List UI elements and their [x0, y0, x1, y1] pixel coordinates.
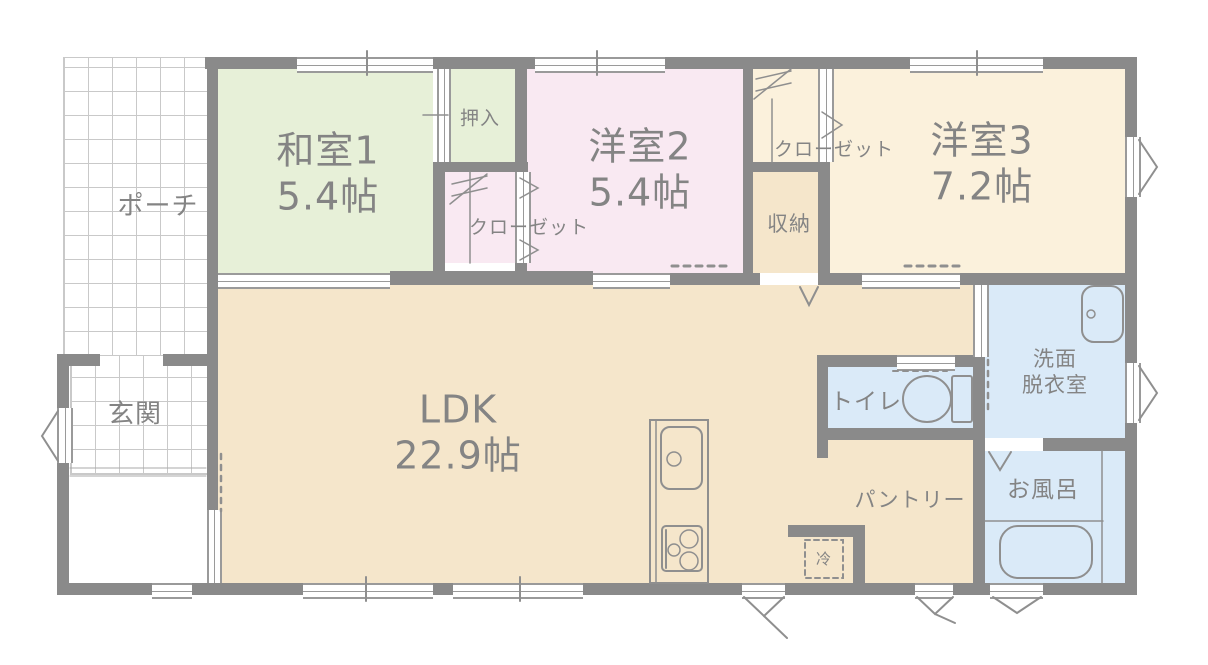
swing-door-icon [1139, 140, 1157, 420]
wall [390, 271, 593, 285]
western-room-3-label: 洋室3 7.2帖 [930, 118, 1033, 211]
oshiire-label: 押入 [460, 104, 500, 131]
swing-door [1125, 137, 1141, 197]
wall [973, 357, 985, 583]
wall [960, 273, 1137, 285]
wall [433, 162, 528, 172]
door-opening [985, 438, 1043, 451]
refrigerator-label: 冷 [816, 551, 832, 568]
back-door [990, 583, 1043, 599]
wall [583, 583, 742, 595]
window [535, 57, 665, 73]
storage-label: 収納 [767, 208, 811, 238]
room-name: 和室1 [276, 128, 379, 174]
room-name: 脱衣室 [1022, 372, 1088, 398]
sliding-door [218, 273, 390, 289]
wall [1125, 57, 1137, 137]
entrance-door [57, 408, 73, 463]
closet-east-label: クローゼット [774, 135, 894, 162]
sliding-door [207, 510, 222, 583]
entrance-label: 玄関 [108, 394, 162, 431]
washroom-label: 洗面 脱衣室 [1022, 346, 1088, 399]
ldk-label: LDK 22.9帖 [394, 387, 522, 480]
wall [953, 583, 990, 595]
japanese-room-1-label: 和室1 5.4帖 [276, 128, 379, 221]
room-size: 5.4帖 [588, 170, 691, 216]
window [910, 57, 1043, 73]
bath-label: お風呂 [1007, 470, 1079, 504]
pantry-label: パントリー [854, 484, 965, 514]
wall [853, 525, 865, 583]
wall [205, 57, 297, 69]
wall [433, 57, 535, 69]
door-opening [760, 273, 818, 285]
sliding-door [973, 285, 989, 357]
wall [785, 583, 915, 595]
room-name: LDK [394, 387, 522, 433]
room-size: 22.9帖 [394, 433, 522, 479]
wall [817, 355, 828, 458]
room-name: 洋室3 [930, 118, 1033, 164]
sliding-door [862, 273, 960, 289]
wall [1043, 583, 1137, 595]
entrance-door-swing-icon [42, 411, 58, 461]
sliding-door [437, 69, 451, 162]
wall [743, 162, 830, 172]
wall [433, 583, 453, 595]
closet-west-label: クローゼット [469, 213, 589, 240]
wall [57, 354, 100, 366]
window [453, 583, 583, 599]
wall [818, 162, 830, 285]
toilet-label: トイレ [830, 382, 902, 416]
porch-label: ポーチ [117, 186, 198, 223]
western-room-2-label: 洋室2 5.4帖 [588, 124, 691, 217]
room-name: 洋室2 [588, 124, 691, 170]
wall [817, 355, 897, 367]
room-size: 7.2帖 [930, 164, 1033, 210]
sliding-door [897, 355, 955, 371]
window [303, 583, 433, 599]
wall [57, 583, 153, 595]
room-name: 洗面 [1022, 346, 1088, 372]
wall [57, 463, 69, 595]
wall [1043, 57, 1137, 69]
wall [1043, 438, 1125, 451]
wall [817, 428, 973, 440]
swing-door [1125, 363, 1141, 423]
back-door [915, 583, 953, 599]
sliding-door [593, 273, 670, 289]
wall [192, 583, 303, 595]
wall [207, 57, 218, 510]
window [152, 583, 192, 599]
wall [515, 69, 527, 162]
window [297, 57, 433, 73]
wall [955, 355, 973, 367]
floor-plan: ポーチ 玄関 和室1 5.4帖 洋室2 5.4帖 洋室3 7.2帖 LDK 22… [0, 0, 1208, 665]
wall [433, 162, 445, 277]
wall [665, 57, 910, 69]
wall [1125, 423, 1137, 595]
room-size: 5.4帖 [276, 174, 379, 220]
wall [670, 273, 760, 285]
wall [515, 263, 527, 273]
back-door [742, 583, 785, 599]
